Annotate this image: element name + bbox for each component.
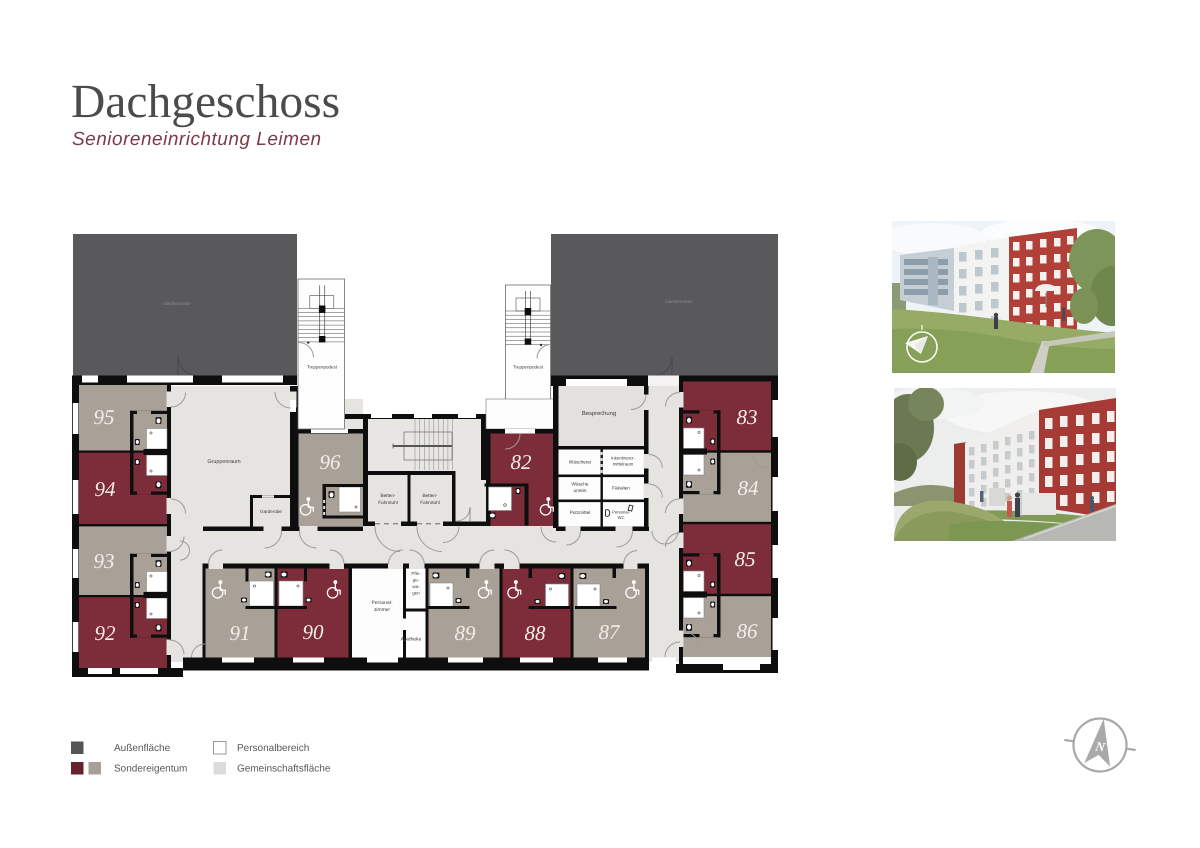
svg-text:89: 89 [455, 621, 477, 645]
svg-text:84: 84 [738, 476, 760, 500]
svg-text:91: 91 [230, 621, 251, 645]
svg-text:zimmer: zimmer [374, 607, 390, 613]
svg-text:Putzmittel: Putzmittel [570, 510, 591, 515]
svg-text:Treppenpodest: Treppenpodest [307, 365, 338, 370]
svg-text:Gruppenraum: Gruppenraum [207, 459, 241, 465]
svg-text:94: 94 [95, 477, 117, 501]
svg-text:Garderobe: Garderobe [260, 509, 282, 514]
svg-text:Außenfläche: Außenfläche [114, 743, 171, 754]
svg-text:Treppenpodest: Treppenpodest [513, 365, 544, 370]
svg-text:Dachterrasse: Dachterrasse [163, 301, 191, 306]
svg-text:Dachgeschoss: Dachgeschoss [71, 76, 340, 128]
svg-text:Dachterrasse: Dachterrasse [665, 299, 693, 304]
svg-text:Fahrstuhl: Fahrstuhl [378, 500, 398, 505]
svg-text:Personalbereich: Personalbereich [237, 743, 309, 754]
svg-text:wa-: wa- [412, 584, 420, 589]
svg-text:96: 96 [320, 450, 342, 474]
svg-text:Wäsche: Wäsche [572, 482, 589, 487]
svg-text:82: 82 [511, 450, 533, 474]
svg-text:Apotheke: Apotheke [401, 637, 422, 643]
svg-text:gen: gen [412, 591, 420, 596]
svg-text:mittelraum: mittelraum [613, 462, 634, 467]
svg-text:83: 83 [737, 405, 758, 429]
svg-text:93: 93 [94, 549, 115, 573]
svg-text:87: 87 [599, 620, 622, 644]
svg-text:Betten-: Betten- [422, 493, 438, 498]
svg-text:Senioreneinrichtung Leimen: Senioreneinrichtung Leimen [72, 129, 322, 150]
svg-text:Wäscherei: Wäscherei [569, 460, 591, 465]
svg-text:90: 90 [303, 620, 325, 644]
svg-text:Sondereigentum: Sondereigentum [114, 764, 187, 775]
svg-text:86: 86 [737, 619, 759, 643]
svg-text:88: 88 [525, 621, 547, 645]
svg-text:Pfle-: Pfle- [411, 571, 421, 576]
svg-text:unrein: unrein [573, 488, 586, 493]
svg-text:Betten-: Betten- [380, 493, 396, 498]
svg-text:Besprechung: Besprechung [582, 410, 616, 417]
svg-text:WC: WC [618, 515, 625, 520]
svg-text:Personal-: Personal- [372, 600, 393, 606]
svg-text:Fahrstuhl: Fahrstuhl [420, 500, 440, 505]
svg-text:95: 95 [94, 405, 115, 429]
svg-text:ge-: ge- [413, 578, 420, 583]
svg-text:Gemeinschaftsfläche: Gemeinschaftsfläche [237, 764, 331, 775]
svg-text:92: 92 [95, 621, 117, 645]
svg-text:Fäkalien: Fäkalien [612, 486, 630, 491]
svg-text:Inkontinenz-: Inkontinenz- [611, 456, 635, 461]
svg-text:85: 85 [735, 547, 756, 571]
